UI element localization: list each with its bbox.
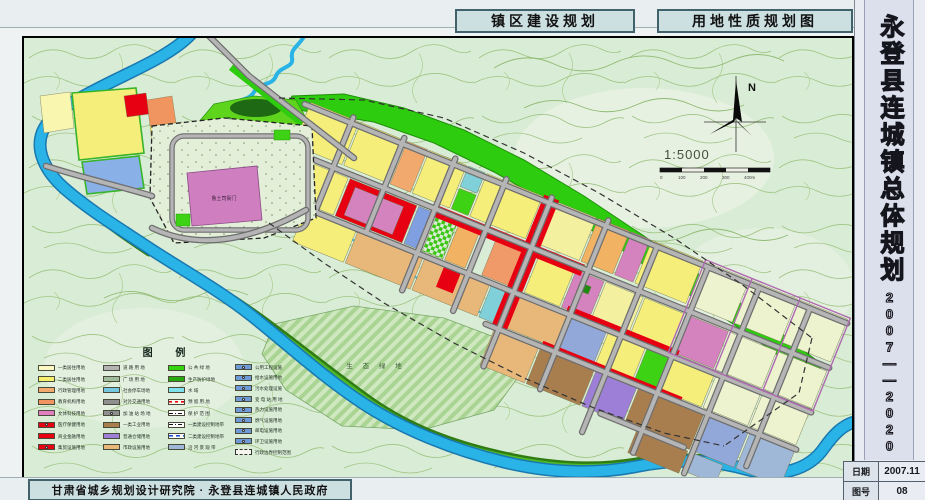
legend-swatch	[168, 365, 185, 371]
legend-label: 预 留 用 地	[188, 400, 210, 405]
map-frame: 鲁土司衙门 生 态 绿 地	[22, 36, 854, 481]
legend-item: 保 护 范 围	[168, 408, 232, 419]
legend-label: 行政管理用地	[58, 388, 85, 393]
legend-item: 市政设施用地	[103, 442, 165, 453]
legend-item: 行政管理用地	[38, 385, 100, 396]
legend-swatch	[103, 422, 120, 428]
legend-swatch-icon	[242, 419, 245, 422]
legend-swatch	[235, 417, 252, 423]
legend-title: 图 例	[38, 344, 300, 359]
legend-item: 一类工业用地	[103, 419, 165, 430]
legend-label: 普通仓储用地	[123, 434, 150, 439]
legend-label: 污水处理设施	[255, 386, 282, 391]
legend-item: 广 场 用 地	[103, 373, 165, 384]
legend-swatch	[38, 376, 55, 382]
scale-text: 1:5000	[664, 147, 710, 162]
legend-item: 变 电 站 用 地	[235, 394, 303, 405]
legend-label: 一类居住用地	[58, 365, 85, 370]
legend-swatch-icon	[242, 408, 245, 411]
legend: 图 例 一类居住用地二类居住用地行政管理用地教育机构用地文体科技用地医疗保健用地…	[38, 344, 300, 474]
legend-swatch	[103, 365, 120, 371]
legend-item: 集贸设施用地	[38, 442, 100, 453]
legend-label: 公 共 绿 地	[188, 365, 210, 370]
legend-item: 对外交通用地	[103, 396, 165, 407]
legend-item: 污水处理设施	[235, 383, 303, 394]
legend-swatch	[235, 385, 252, 391]
legend-label: 环卫设施用地	[255, 439, 282, 444]
legend-label: 水 域	[188, 388, 198, 393]
legend-label: 给水设施用地	[255, 376, 282, 381]
legend-label: 一类建设控制地带	[188, 422, 224, 427]
legend-item: 商业金融用地	[38, 430, 100, 441]
legend-swatch	[168, 399, 185, 405]
legend-swatch	[235, 407, 252, 413]
legend-label: 二类建设控制地带	[188, 434, 224, 439]
legend-item: 环卫设施用地	[235, 436, 303, 447]
legend-swatch	[38, 433, 55, 439]
legend-swatch	[103, 433, 120, 439]
legend-label: 文体科技用地	[58, 411, 85, 416]
legend-swatch	[235, 364, 252, 370]
legend-column: 道 路 用 地广 场 用 地社会停车场地对外交通用地加 油 站 场 地一类工业用…	[103, 362, 165, 457]
footer-strip: 甘肃省城乡规划设计研究院 · 永登县连城镇人民政府	[0, 477, 854, 500]
legend-item: 公用工程设施	[235, 362, 303, 373]
legend-item: 热力设施用地	[235, 404, 303, 415]
legend-swatch-icon	[242, 376, 245, 379]
legend-swatch	[235, 428, 252, 434]
info-label: 日期	[844, 462, 879, 481]
page-title-right: 用地性质规划图	[657, 9, 853, 33]
legend-item: 一类建设控制地带	[168, 419, 232, 430]
sidebar-info-table: 日期2007.11图号08	[843, 461, 925, 500]
legend-swatch	[38, 387, 55, 393]
legend-swatch-icon	[242, 440, 245, 443]
legend-item: 沿 河 景 观 带	[168, 442, 232, 453]
legend-column: 一类居住用地二类居住用地行政管理用地教育机构用地文体科技用地医疗保健用地商业金融…	[38, 362, 100, 457]
legend-item: 医疗保健用地	[38, 419, 100, 430]
legend-columns: 一类居住用地二类居住用地行政管理用地教育机构用地文体科技用地医疗保健用地商业金融…	[38, 362, 300, 457]
legend-item: 教育机构用地	[38, 396, 100, 407]
legend-label: 变 电 站 用 地	[255, 397, 283, 402]
legend-swatch	[38, 399, 55, 405]
legend-label: 公用工程设施	[255, 365, 282, 370]
legend-label: 一类工业用地	[123, 422, 150, 427]
legend-swatch	[103, 444, 120, 450]
legend-swatch	[235, 449, 252, 455]
legend-label: 燃气设施用地	[255, 418, 282, 423]
legend-swatch	[235, 375, 252, 381]
legend-label: 生产防护绿地	[188, 377, 215, 382]
legend-swatch	[38, 410, 55, 416]
legend-item: 燃气设施用地	[235, 415, 303, 426]
legend-item: 预 留 用 地	[168, 396, 232, 407]
legend-item: 水 域	[168, 385, 232, 396]
page-title-left: 镇区建设规划	[455, 9, 635, 33]
scale-tick: 300	[722, 175, 730, 180]
info-label: 图号	[844, 482, 879, 500]
legend-label: 教育机构用地	[58, 400, 85, 405]
sidebar-years-vertical: 2007——2020	[865, 290, 913, 455]
legend-item: 普通仓储用地	[103, 430, 165, 441]
info-value: 2007.11	[879, 462, 925, 481]
legend-item: 二类居住用地	[38, 373, 100, 384]
legend-column: 公用工程设施给水设施用地污水处理设施变 电 站 用 地热力设施用地燃气设施用地邮…	[235, 362, 303, 457]
legend-item: 加 油 站 场 地	[103, 408, 165, 419]
legend-label: 集贸设施用地	[58, 445, 85, 450]
scale-tick: 400m	[744, 175, 756, 180]
legend-item: 道 路 用 地	[103, 362, 165, 373]
legend-label: 热力设施用地	[255, 407, 282, 412]
footer-credit: 甘肃省城乡规划设计研究院 · 永登县连城镇人民政府	[28, 479, 352, 500]
legend-swatch	[103, 376, 120, 382]
legend-item: 公 共 绿 地	[168, 362, 232, 373]
legend-label: 加 油 站 场 地	[123, 411, 151, 416]
legend-label: 对外交通用地	[123, 400, 150, 405]
legend-label: 邮电设施用地	[255, 429, 282, 434]
legend-item: 行政边界控制范围	[235, 447, 303, 458]
legend-swatch-icon	[242, 398, 245, 401]
legend-swatch	[168, 387, 185, 393]
legend-swatch	[38, 444, 55, 450]
legend-label: 保 护 范 围	[188, 411, 210, 416]
legend-swatch	[168, 376, 185, 382]
legend-label: 沿 河 景 观 带	[188, 445, 216, 450]
sidebar-info-row: 日期2007.11	[843, 461, 925, 482]
legend-swatch	[168, 433, 185, 439]
legend-swatch-icon	[242, 366, 245, 369]
historic-site-label: 鲁土司衙门	[211, 195, 236, 202]
legend-swatch	[235, 438, 252, 444]
legend-item: 二类建设控制地带	[168, 430, 232, 441]
legend-item: 给水设施用地	[235, 373, 303, 384]
legend-label: 广 场 用 地	[123, 377, 145, 382]
legend-item: 一类居住用地	[38, 362, 100, 373]
legend-swatch	[38, 365, 55, 371]
legend-label: 行政边界控制范围	[255, 450, 291, 455]
legend-swatch	[168, 422, 185, 428]
scale-tick: 100	[678, 175, 686, 180]
planning-sheet: 镇区建设规划 用地性质规划图	[0, 0, 925, 500]
legend-label: 道 路 用 地	[123, 365, 145, 370]
legend-swatch	[103, 387, 120, 393]
right-sidebar: 永登县连城镇总体规划 2007——2020 日期2007.11图号08	[854, 0, 925, 500]
legend-swatch	[103, 399, 120, 405]
legend-item: 邮电设施用地	[235, 426, 303, 437]
north-label: N	[748, 82, 756, 94]
legend-swatch	[235, 396, 252, 402]
legend-label: 医疗保健用地	[58, 422, 85, 427]
sidebar-title-strip: 永登县连城镇总体规划 2007——2020	[864, 0, 914, 460]
legend-swatch-icon	[110, 412, 113, 415]
legend-swatch-icon	[45, 446, 48, 449]
legend-item: 生产防护绿地	[168, 373, 232, 384]
legend-swatch	[168, 410, 185, 416]
scale-tick: 200	[700, 175, 708, 180]
legend-swatch-icon	[45, 423, 48, 426]
sidebar-title-vertical: 永登县连城镇总体规划	[865, 14, 913, 284]
eco-green-label: 生 态 绿 地	[346, 361, 405, 370]
sidebar-info-row: 图号08	[843, 482, 925, 500]
legend-swatch-icon	[242, 429, 245, 432]
legend-swatch	[168, 444, 185, 450]
legend-label: 社会停车场地	[123, 388, 150, 393]
legend-swatch	[38, 422, 55, 428]
info-value: 08	[879, 482, 925, 500]
legend-item: 社会停车场地	[103, 385, 165, 396]
legend-label: 二类居住用地	[58, 377, 85, 382]
legend-label: 商业金融用地	[58, 434, 85, 439]
legend-swatch-icon	[242, 387, 245, 390]
legend-swatch	[103, 410, 120, 416]
legend-label: 市政设施用地	[123, 445, 150, 450]
legend-column: 公 共 绿 地生产防护绿地水 域预 留 用 地保 护 范 围一类建设控制地带二类…	[168, 362, 232, 457]
legend-item: 文体科技用地	[38, 408, 100, 419]
old-town: 鲁土司衙门	[150, 118, 316, 243]
